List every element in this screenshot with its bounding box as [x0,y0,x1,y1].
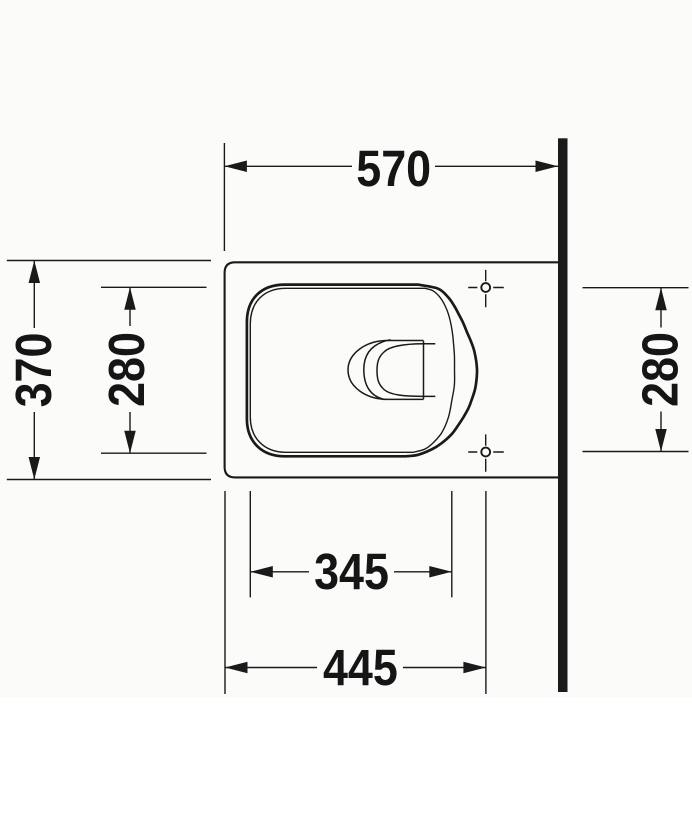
svg-text:370: 370 [6,333,62,408]
svg-text:445: 445 [323,641,398,697]
svg-text:280: 280 [633,332,689,407]
svg-text:280: 280 [99,332,155,407]
svg-text:570: 570 [356,142,431,198]
svg-text:345: 345 [314,545,389,601]
